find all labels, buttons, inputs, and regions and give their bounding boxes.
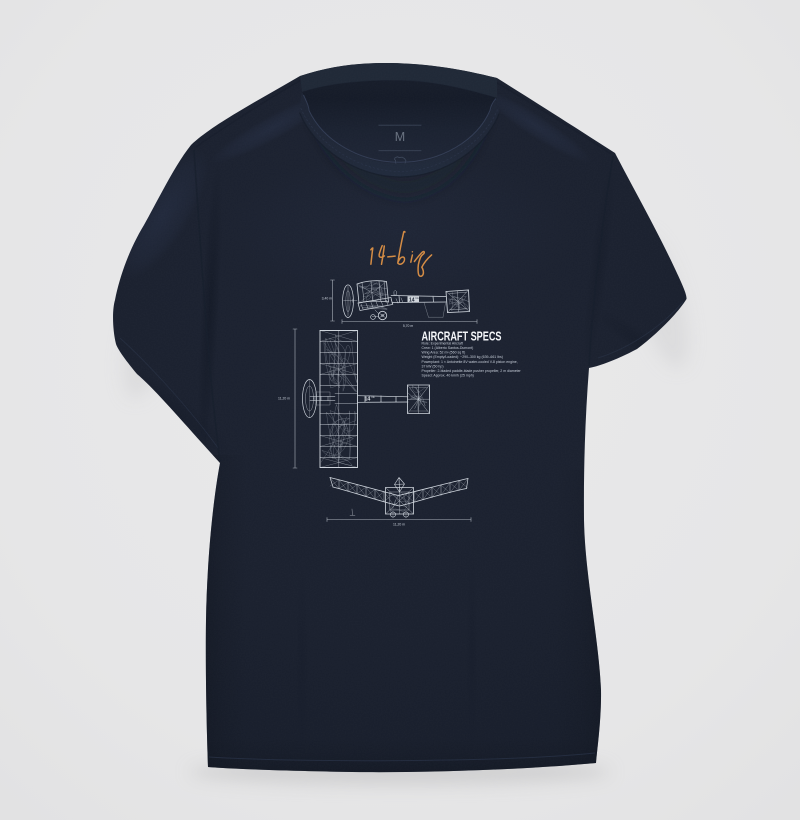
svg-text:Powerplant: 1 × Antoinette 8V: Powerplant: 1 × Antoinette 8V water-cool… xyxy=(422,360,518,364)
svg-text:5,70 m: 5,70 m xyxy=(403,324,414,328)
svg-text:3,40 m: 3,40 m xyxy=(322,296,333,300)
svg-text:14: 14 xyxy=(409,297,415,303)
svg-text:Weight (Empty/Loaded): ~290–30: Weight (Empty/Loaded): ~290–300 kg (639–… xyxy=(422,355,503,359)
svg-text:11,20 m: 11,20 m xyxy=(393,522,405,526)
svg-text:37 kW (50 hp): 37 kW (50 hp) xyxy=(422,364,444,368)
svg-text:11,20 m: 11,20 m xyxy=(278,397,290,401)
svg-text:14: 14 xyxy=(365,397,371,403)
svg-text:Role: Experimental Aircraft: Role: Experimental Aircraft xyxy=(422,341,463,345)
svg-text:Crew: 1 (Alberto Santos-Dumont: Crew: 1 (Alberto Santos-Dumont) xyxy=(422,346,474,350)
svg-text:Speed: Approx. 40 km/h (25 mph: Speed: Approx. 40 km/h (25 mph) xyxy=(422,374,474,378)
svg-text:Wing Area: 52 m² (560 sq ft): Wing Area: 52 m² (560 sq ft) xyxy=(422,351,466,355)
svg-text:Propeller: 2-bladed paddle-bla: Propeller: 2-bladed paddle-blade pusher … xyxy=(422,369,522,373)
